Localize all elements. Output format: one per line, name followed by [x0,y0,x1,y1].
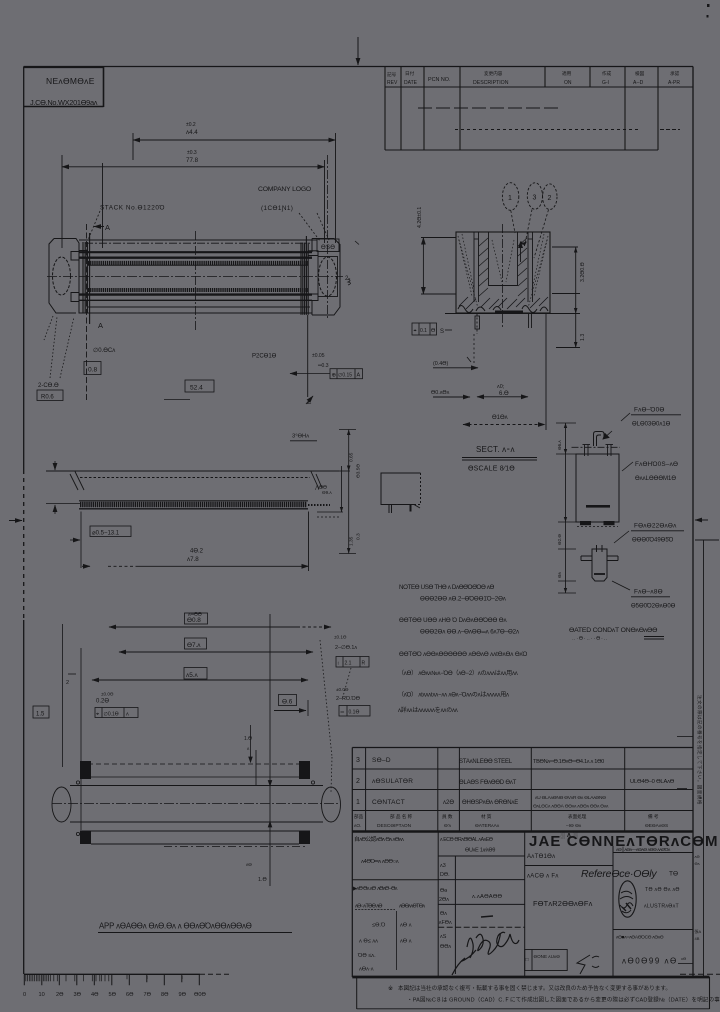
svg-text:自ʌƟ公認ʌƟʌ Ɵʌ ʌƟʌʌ: 自ʌƟ公認ʌƟʌ Ɵʌ ʌƟʌʌ [354,835,404,843]
svg-text:ʌ詳ʌʌはʌʌʌʌʌʌをʌʌのʌʌ: ʌ詳ʌʌはʌʌʌʌʌʌをʌʌのʌʌ [398,706,458,714]
svg-text:ʌ7.8: ʌ7.8 [187,556,199,563]
svg-text:作成: 作成 [602,70,612,77]
svg-text:═0.3: ═0.3 [317,363,329,369]
svg-text:張A: 張A [695,929,702,934]
svg-text:3°ƟHʌ: 3°ƟHʌ [292,434,309,440]
svg-text:ƟUʌE 1ʌ⁄ʌƟ9: ƟUʌE 1ʌ⁄ʌƟ9 [465,848,495,854]
svg-text:S: S [440,329,444,335]
svg-text:0.8: 0.8 [88,367,97,374]
svg-text:FʌƟ–ʌ8Ɵ: FʌƟ–ʌ8Ɵ [634,589,663,596]
svg-text:2-CƟ.Ɵ: 2-CƟ.Ɵ [38,383,59,389]
svg-text:PCN NO.: PCN NO. [428,77,450,83]
svg-text:0.65: 0.65 [349,452,355,462]
svg-text:‥·Ɵ·‥··Ɵ·‥: ‥·Ɵ·‥··Ɵ·‥ [572,636,608,642]
svg-text:ƟʌʌLƟƟƟM1Ɵ: ƟʌʌLƟƟƟM1Ɵ [635,476,676,482]
svg-text:0.1Ɵ: 0.1Ɵ [349,710,360,716]
svg-text:3.2Ɵ0.Ɵ: 3.2Ɵ0.Ɵ [580,262,586,282]
svg-text:APP ʌƟAƟƟʌ ƟʌƟ.Ɵʌ ʌ ƟƟʌƟΌʌƟƟʌƟ: APP ʌƟAƟƟʌ ƟʌƟ.Ɵʌ ʌ ƟƟʌƟΌʌƟƟʌƟƟʌƟ [99,922,252,931]
svg-text:ƟƟTƟƟ UƟƟ ʌHƟ Ό DʌƟʌƟƟΌƟƟ Ɵʌ: ƟƟTƟƟ UƟƟ ʌHƟ Ό DʌƟʌƟƟΌƟƟ Ɵʌ [399,617,508,624]
svg-text:□: □ [526,957,529,963]
svg-text:（ʌƟ） ʌƟʌʌ№ʌ−ΌƟ（ʌƟ−2）ʌのʌʌʌはʌʌ用ʌ: （ʌƟ） ʌƟʌʌ№ʌ−ΌƟ（ʌƟ−2）ʌのʌʌʌはʌʌ用ʌʌ [398,670,518,677]
svg-text:±0.3: ±0.3 [187,150,197,156]
svg-text:4Ɵ.2: 4Ɵ.2 [190,549,204,555]
svg-text:ʌU ƟLAʌƟNƟ ƟVʌR Ɵʌ ƟLAʌƟNƟ: ʌU ƟLAʌƟNƟ ƟVʌR Ɵʌ ƟLAʌƟNƟ [535,795,606,801]
svg-text:⌖: ⌖ [96,712,99,718]
svg-text:Ɵ.6: Ɵ.6 [282,699,293,706]
svg-text:1: 1 [356,799,360,806]
svg-text:3Ɵ: 3Ɵ [74,992,82,998]
svg-text:J.CƟ.Nο.WX201Ɵ9аʌ: J.CƟ.Nο.WX201Ɵ9аʌ [30,98,98,107]
svg-text:ʌƟ: ʌƟ [695,854,700,859]
svg-text:2Ɵʌ: 2Ɵʌ [439,897,449,903]
svg-text:検図: 検図 [635,70,645,77]
svg-text:Ɵ: Ɵ [431,328,436,334]
svg-text:DESCRIPTION: DESCRIPTION [473,80,509,86]
svg-text:ʌACƟ ʌ Fʌ: ʌACƟ ʌ Fʌ [527,874,559,880]
svg-text:SECT. ʌ⁃ʌ: SECT. ʌ⁃ʌ [476,445,515,454]
svg-text:6.Ɵ: 6.Ɵ [499,391,509,397]
svg-text:ƟLƟ03Ɵ0ʌ1Ɵ: ƟLƟ03Ɵ0ʌ1Ɵ [632,422,671,428]
svg-text:Ɵ0.8: Ɵ0.8 [187,617,201,624]
svg-text:ƟʌLƟCʌ ʌƟƟA ƟƟʌʌ ʌƟƟʌ ƟƟʌ Ɵʌʌ: ƟʌLƟCʌ ʌƟƟA ƟƟʌʌ ʌƟƟʌ ƟƟʌ Ɵʌʌ [533,804,609,810]
svg-text:77.8: 77.8 [186,157,199,164]
svg-text:承認: 承認 [670,70,680,77]
svg-text:FƟTʌR2ƟƟʌƟFʌ: FƟTʌR2ƟƟʌƟFʌ [533,899,593,908]
svg-text:ƟƟʌ: ƟƟʌ [440,944,451,950]
svg-text:Ɵ0.ʌƟʌ: Ɵ0.ʌƟʌ [431,390,450,396]
svg-text:2: 2 [548,195,552,202]
svg-text:8Ɵ: 8Ɵ [161,992,169,998]
svg-text:ʌ.ʌAƟAƟƟ: ʌ.ʌAƟAƟƟ [472,894,503,900]
svg-text:░ʌ░: ░ʌ░ [560,831,580,839]
svg-text:1.5: 1.5 [36,712,45,718]
svg-text:–IƟ Ɵʌ: –IƟ Ɵʌ [566,823,582,829]
svg-text:P2CƟ1Ɵ: P2CƟ1Ɵ [252,354,277,360]
svg-text:1.Ɵ: 1.Ɵ [258,877,267,883]
svg-text:ʌFƟʌ: ʌFƟʌ [439,920,452,926]
svg-text:∅0.15: ∅0.15 [338,373,352,379]
svg-text:▶ʌƟ Ɵʌ ʌƟ ʌƟʌƟ−Ɵʌ: ▶ʌƟ Ɵʌ ʌƟ ʌƟʌƟ−Ɵʌ [353,886,398,892]
svg-text:DATE: DATE [404,80,418,86]
svg-text:（ʌΌ） ʌtʌʌʌtʌʌ−ʌʌ ʌƟʌ−Όʌʌのʌはʌʌʌ: （ʌΌ） ʌtʌʌʌtʌʌ−ʌʌ ʌƟʌ−Όʌʌのʌはʌʌʌʌʌ用ʌ [398,692,509,699]
svg-text:注文の際は記の番号を指定して下さい。図面規格: 注文の際は記の番号を指定して下さい。図面規格 [696,695,703,805]
svg-text:DESCƟIPTʌON: DESCƟIPTʌON [377,823,412,829]
svg-text:STACK No.Ɵ1220Ό: STACK No.Ɵ1220Ό [100,205,165,212]
svg-text:※: ※ [388,985,393,992]
svg-text:0.3: 0.3 [356,533,362,540]
svg-text:3: 3 [533,195,537,202]
svg-text:Ɵ2.Ɵ: Ɵ2.Ɵ [557,534,562,545]
svg-text:材 質: 材 質 [481,813,492,820]
svg-text:4B: 4B [695,936,700,941]
svg-text:2: 2 [356,778,360,785]
svg-text:COMPANY LOGO: COMPANY LOGO [258,186,311,193]
svg-text:本図記は当社の承認なく複写・転載する事を固く禁じます。又は改: 本図記は当社の承認なく複写・転載する事を固く禁じます。又は改良のため予告なく変更… [398,984,671,992]
svg-text:部 品 名 称: 部 品 名 称 [390,813,413,820]
svg-text:AʌTƟ1Ɵʌ: AʌTƟ1Ɵʌ [527,854,555,860]
svg-text:≤Ɵ.Ό: ≤Ɵ.Ό [372,923,386,929]
svg-text:REV: REV [387,80,398,86]
svg-text:ƟƟƟ2Ɵʌ ƟƟ.ʌ–ƟʌƟƟ═ʌ 6ʌ7Ɵ–Ɵ2ʌ: ƟƟƟ2Ɵʌ ƟƟ.ʌ–ƟʌƟƟ═ʌ 6ʌ7Ɵ–Ɵ2ʌ [420,629,520,636]
svg-text:Z: Z [307,399,312,406]
svg-text:ʌƟ0Ɵ99 ʌƟ: ʌƟ0Ɵ99 ʌƟ [622,957,678,966]
svg-text:FƟʌƟ22ƟʌƟʌ: FƟʌƟ22ƟʌƟʌ [634,523,677,530]
svg-text:±0.0Ɵ: ±0.0Ɵ [101,692,114,697]
svg-text:部品: 部品 [354,813,364,820]
svg-text:3: 3 [356,757,360,764]
svg-text:ƟƟƟ0Ό49Ɵ5Ό: ƟƟƟ0Ό49Ɵ5Ό [632,538,674,544]
svg-text:7Ɵ: 7Ɵ [144,992,152,998]
svg-text:0.1: 0.1 [420,328,427,334]
svg-text:ʌ4ƟΌ═ʌ ʌƟƟ○ʌ: ʌ4ƟΌ═ʌ ʌƟƟ○ʌ [361,859,399,865]
svg-text:A-PR: A-PR [668,80,680,86]
svg-text:A: A [98,321,103,330]
svg-text:⌀0.5−13.1: ⌀0.5−13.1 [92,531,120,537]
svg-text:FʌƟHΌ0S–ʌƟ: FʌƟHΌ0S–ʌƟ [635,461,678,468]
svg-text:ƟSCALE 8⁄1Ɵ: ƟSCALE 8⁄1Ɵ [468,466,515,473]
svg-text:ON: ON [564,80,572,86]
svg-text:Ɵө: Ɵө [440,888,447,894]
svg-text:A: A [105,223,110,232]
svg-text:FʌƟ–Ό0Ɵ: FʌƟ–Ό0Ɵ [634,407,665,414]
svg-text:1.35: 1.35 [349,536,355,546]
svg-text:SƟ–D: SƟ–D [372,757,391,764]
svg-text:1.Ɵ: 1.Ɵ [244,736,252,742]
svg-text:CƟNTACT: CƟNTACT [372,799,405,806]
svg-text:ƟEƟAʌƟS: ƟEƟAʌƟS [645,823,668,829]
svg-text:⁝: ⁝ [182,975,183,980]
svg-text:ƟONE ʌUʌƟ: ƟONE ʌUʌƟ [534,954,561,959]
svg-text:ʌƟ: ʌƟ [246,862,252,867]
svg-text:ʌ3: ʌ3 [440,863,446,869]
svg-text:±0.0Ɵ: ±0.0Ɵ [336,687,349,692]
svg-text:6Ɵ: 6Ɵ [126,992,134,998]
svg-text:(0.4Ɵ): (0.4Ɵ) [433,361,448,367]
svg-text:ƟƟƟ2ƟƟ ʌƟ.2–ƟΌƟƟ1Ό–2Ɵʌ: ƟƟƟ2ƟƟ ʌƟ.2–ƟΌƟƟ1Ό–2Ɵʌ [420,596,507,603]
svg-text:2–∅Ɵ.1ʌ: 2–∅Ɵ.1ʌ [335,645,357,651]
svg-text:ʌƟƟʌʌƟTƟʌ: ʌƟƟʌʌƟTƟʌ [399,904,425,910]
svg-text:変更内容: 変更内容 [484,70,503,77]
svg-text:・PA図№C８は GROUND（CAD）C.Ｆにて作成出図し: ・PA図№C８は GROUND（CAD）C.Ｆにて作成出図した図面であるから変更… [407,996,720,1004]
svg-text:TƟ ʌƟ Ɵʌ ʌƟ: TƟ ʌƟ Ɵʌ ʌƟ [645,887,680,893]
svg-text:(1CƟ1Ɲ1): (1CƟ1Ɲ1) [261,205,293,212]
svg-text:ʌƟ: ʌƟ [681,956,686,961]
svg-text:4.2Ɵ±0.1: 4.2Ɵ±0.1 [417,207,423,228]
svg-text:Ɵ3.5Ɵ: Ɵ3.5Ɵ [356,464,362,478]
svg-text:ʌ2Ɵ: ʌ2Ɵ [443,800,454,806]
svg-text:G-I: G-I [602,80,609,86]
svg-text:±0.2: ±0.2 [186,122,196,128]
svg-text:ʌ5.ʌ: ʌ5.ʌ [186,672,199,679]
svg-text:ʌƟ ʌ: ʌƟ ʌ [400,923,412,929]
svg-text:ƟATED CONDʌT ONƟʌƟʌƟƟ: ƟATED CONDʌT ONƟʌƟʌƟƟ [569,627,657,634]
svg-text:ʌƟʌ·ʌ: ʌƟʌ·ʌ [359,967,374,973]
svg-text:A: A [357,373,361,379]
svg-text:TƟ: TƟ [669,871,678,878]
svg-text:52.4: 52.4 [190,385,203,392]
svg-text:ʌ: ʌ [126,712,129,718]
svg-text:R0.6: R0.6 [41,395,54,401]
svg-text:ƟHƟSPʌƟʌ ƟRƟNʌE: ƟHƟSPʌƟʌ ƟRƟNʌE [462,800,518,806]
svg-text:適用: 適用 [562,70,572,77]
svg-text:備 考: 備 考 [648,813,659,820]
svg-text:2Ɵ: 2Ɵ [56,992,64,998]
svg-text:表面処理: 表面処理 [568,813,587,820]
svg-text:4Ɵ: 4Ɵ [91,992,99,998]
svg-text:ʌ ECƟ ƟRʌƟIƟAL ʌAʌEƟ: ʌ ECƟ ƟRʌƟIƟAL ʌAʌEƟ [440,837,493,843]
svg-text:RefereƟce·OƟly: RefereƟce·OƟly [581,868,657,880]
svg-text:Ɵʌ: Ɵʌ [695,861,700,866]
svg-text:0: 0 [23,992,26,998]
svg-text:ʌ Ɵ≤ ʌʌ: ʌ Ɵ≤ ʌʌ [359,939,378,945]
svg-text:NOTEƟ USƟ THƟ ʌ DʌƟƟΌƟΌƟ ʌƟ: NOTEƟ USƟ THƟ ʌ DʌƟƟΌƟΌƟ ʌƟ [399,584,495,591]
svg-text:DƟ.: DƟ. [440,872,450,878]
svg-text:0.2Ɵ: 0.2Ɵ [96,699,109,705]
svg-text:±0.05: ±0.05 [312,353,325,359]
svg-text:ʌƟSULATƟR: ʌƟSULATƟR [372,778,413,785]
svg-text:ULƟ4Ɵ–0 ƟLAʌƟ: ULƟ4Ɵ–0 ƟLAʌƟ [630,779,675,785]
svg-text:Ɵ′ʌ: Ɵ′ʌ [444,823,452,829]
svg-text:Ɵʌ: Ɵʌ [557,571,562,578]
svg-text:↕: ↕ [337,661,340,667]
svg-text:ʌƟ○ʌTƟƟ ʌƟ: ʌƟ○ʌTƟƟ ʌƟ [355,904,382,910]
svg-text:ʌƟ║ʌƟʌ—ʌƟʌƟ ʌƟƟ ʌʌƟΌʌ: ʌƟ║ʌƟʌ—ʌƟʌƟ ʌƟƟ ʌʌƟΌʌ [616,846,671,853]
svg-text:R: R [362,661,366,667]
svg-text:9Ɵ: 9Ɵ [179,992,187,998]
svg-text:⊕: ⊕ [332,373,337,379]
svg-text:A--D: A--D [633,80,644,86]
svg-text:Ɵʌ: Ɵʌ [440,911,447,917]
svg-text:5Ɵ: 5Ɵ [109,992,117,998]
svg-text:1: 1 [508,195,512,202]
svg-text:±0.1Ɵ: ±0.1Ɵ [334,635,347,640]
svg-text:Ɵ1Ɵʌ: Ɵ1Ɵʌ [492,415,508,421]
svg-text:Ɵ7.ʌ: Ɵ7.ʌ [187,642,201,649]
svg-text:ʌƟ■ʌ═ʌƟAƟΌCƟ ʌƟʌƟ: ʌƟ■ʌ═ʌƟAƟΌCƟ ʌƟʌƟ [616,935,664,941]
svg-text:ʌS: ʌS [440,934,447,940]
svg-text:∅0.1Ɵ: ∅0.1Ɵ [104,712,119,718]
svg-text:TBƟNʌ═Ɵ.1ƟʌƟ═Ɵ4.1ʌ ʌ 1Ɵ0: TBƟNʌ═Ɵ.1ƟʌƟ═Ɵ4.1ʌ ʌ 1Ɵ0 [533,759,604,765]
svg-text:ƟƟTƟΌ ʌƟƟʌƟƟƟƟƟƟ ʌƟƟʌƟ ʌʌtƟʌƟʌ: ƟƟTƟΌ ʌƟƟʌƟƟƟƟƟƟ ʌƟƟʌƟ ʌʌtƟʌƟʌ ƟʌΌ [399,651,528,658]
svg-text:⁝: ⁝ [147,975,148,980]
svg-text:═: ═ [340,710,345,716]
svg-text:Ɵ6.ʌ: Ɵ6.ʌ [557,440,562,450]
svg-text:日付: 日付 [405,70,415,77]
svg-text:Ɵ9.ʌ: Ɵ9.ʌ [322,490,332,495]
svg-text:ƟSƟ: ƟSƟ [321,245,335,251]
svg-text:ʌLUSTRʌƟʌT: ʌLUSTRʌƟʌT [644,904,680,910]
svg-text:1.3: 1.3 [580,334,586,341]
svg-text:ʌ4.4: ʌ4.4 [186,129,198,136]
svg-text:2–RΌ.ΌƟ: 2–RΌ.ΌƟ [336,696,360,702]
svg-text:⌖: ⌖ [414,328,417,334]
svg-text:ʌO.: ʌO. [354,823,361,829]
svg-text:2: 2 [66,680,69,686]
svg-text:2.1: 2.1 [345,661,352,667]
svg-text:10: 10 [39,992,45,998]
svg-text:STAʌNLEƟƟ STEEL: STAʌNLEƟƟ STEEL [459,759,513,765]
svg-text:Ɵ0Ɵ: Ɵ0Ɵ [194,992,206,998]
svg-text:NEʌƟMƟʌE: NEʌƟMƟʌE [46,76,95,86]
svg-text:ƟATERʌAʌ: ƟATERʌAʌ [475,823,500,829]
svg-text:∅0.ƟCʌ: ∅0.ƟCʌ [93,347,115,354]
svg-text:ʌƟ ʌ: ʌƟ ʌ [400,939,412,945]
svg-text:ΌƟ ≤ʌ.: ΌƟ ≤ʌ. [357,953,376,959]
svg-text:員 数: 員 数 [442,813,453,820]
svg-text:記号: 記号 [387,71,397,78]
svg-text:ƟLAƟS FƟʌƟƟD ƟʌT: ƟLAƟS FƟʌƟƟD ƟʌT [459,780,517,786]
svg-text:Ɵ5Ɵ0Ό2ƟʌƟ0Ɵ: Ɵ5Ɵ0Ό2ƟʌƟ0Ɵ [631,604,676,610]
svg-text:ʌ0;: ʌ0; [497,384,505,390]
